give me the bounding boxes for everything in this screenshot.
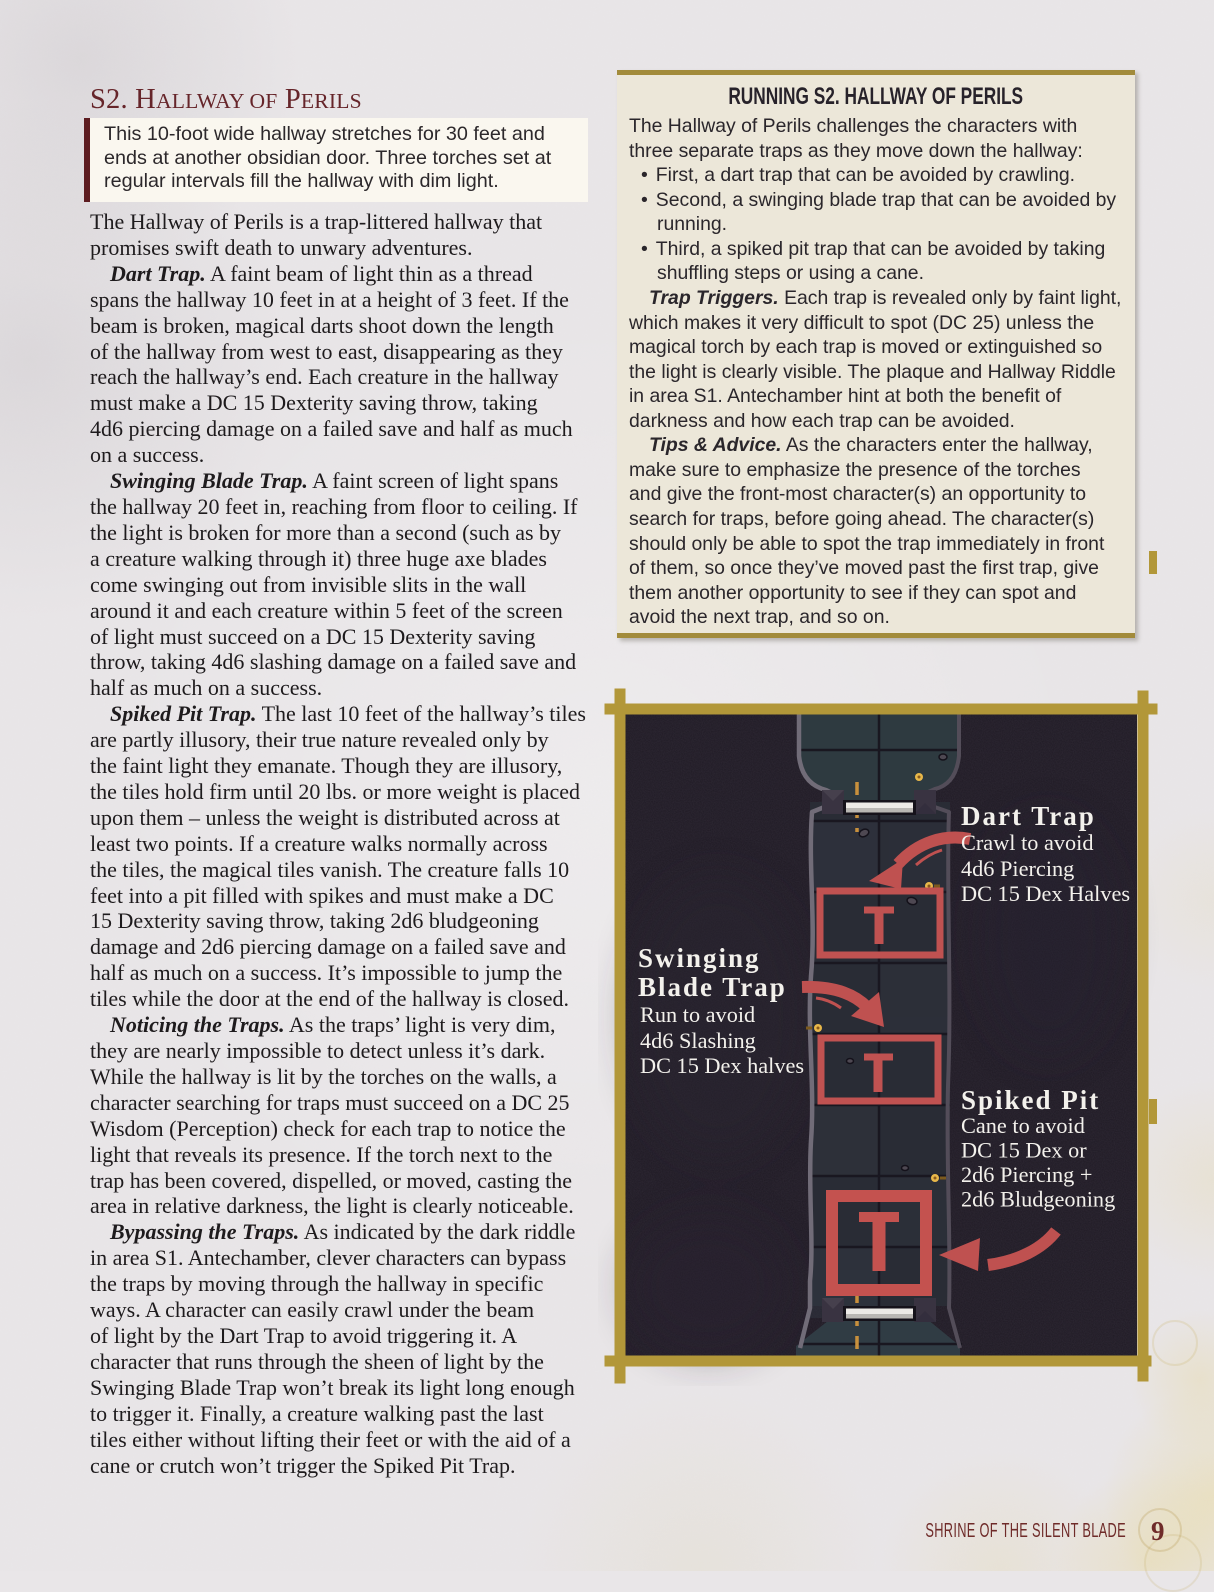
svg-text:Crawl to avoid: Crawl to avoid [961, 830, 1094, 855]
svg-text:4d6 Slashing: 4d6 Slashing [640, 1028, 756, 1053]
svg-text:Spiked Pit: Spiked Pit [961, 1085, 1100, 1115]
svg-text:4d6 Piercing: 4d6 Piercing [961, 856, 1074, 881]
svg-text:DC 15 Dex or: DC 15 Dex or [961, 1138, 1087, 1163]
svg-text:DC 15 Dex halves: DC 15 Dex halves [640, 1053, 804, 1078]
svg-text:Dart Trap: Dart Trap [961, 801, 1096, 831]
svg-text:2d6 Piercing +: 2d6 Piercing + [961, 1162, 1092, 1187]
svg-text:2d6 Bludgeoning: 2d6 Bludgeoning [961, 1187, 1115, 1212]
svg-text:Blade Trap: Blade Trap [638, 972, 787, 1002]
svg-text:Swinging: Swinging [638, 943, 761, 973]
svg-text:DC 15 Dex Halves: DC 15 Dex Halves [961, 881, 1130, 906]
svg-text:Run to avoid: Run to avoid [640, 1002, 755, 1027]
svg-text:Cane to avoid: Cane to avoid [961, 1113, 1085, 1138]
